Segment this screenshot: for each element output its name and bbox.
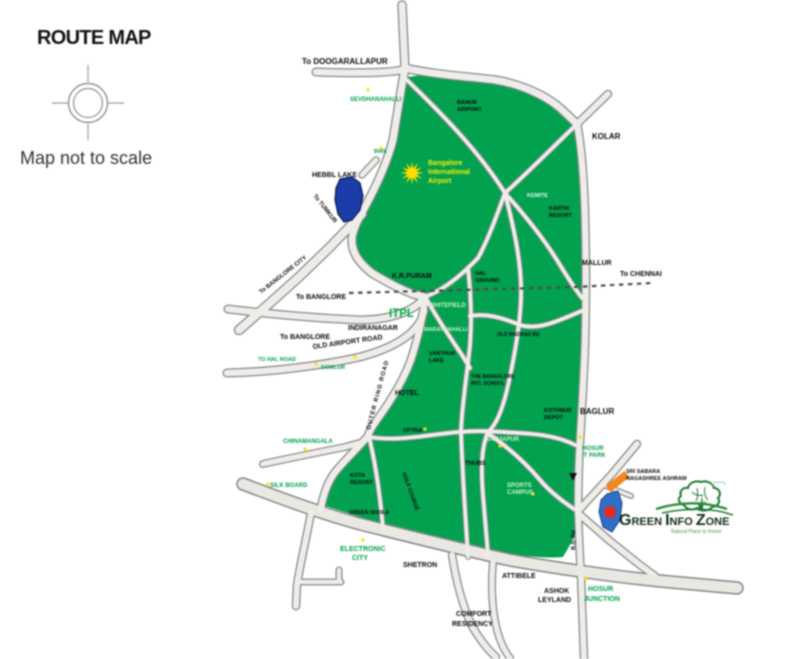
svg-text:MARATHAHALLI: MARATHAHALLI [424,327,468,333]
svg-text:HOSUR: HOSUR [582,446,604,452]
svg-text:MALLUR: MALLUR [582,260,612,267]
svg-text:KOLAR: KOLAR [592,132,621,141]
svg-text:BANUR: BANUR [457,100,477,106]
svg-text:HOTEL: HOTEL [395,390,419,397]
svg-text:SILK BOARD: SILK BOARD [270,483,308,489]
svg-text:To BANGLORE: To BANGLORE [280,334,330,341]
svg-text:HAL: HAL [475,271,487,277]
svg-text:Map not to scale: Map not to scale [20,148,152,168]
svg-text:RESORT: RESORT [549,213,573,219]
svg-text:IT PARK: IT PARK [582,453,606,459]
svg-text:LEYLAND: LEYLAND [538,597,571,604]
svg-text:VARTHUR: VARTHUR [429,351,456,357]
svg-text:OPTRA: OPTRA [403,428,422,434]
svg-text:To DOOGARALLAPUR: To DOOGARALLAPUR [302,57,388,66]
svg-text:COMFORT: COMFORT [456,611,492,618]
svg-text:KOTA: KOTA [350,473,365,479]
svg-text:RESIDENCY: RESIDENCY [452,621,493,628]
svg-text:AIRPORT: AIRPORT [457,107,482,113]
svg-text:HOSUR: HOSUR [588,586,613,593]
svg-text:INTL SCHOOL: INTL SCHOOL [471,381,505,387]
svg-text:HEBBL LAKE: HEBBL LAKE [312,172,357,179]
svg-text:Bangalore: Bangalore [428,160,462,167]
svg-text:THUBS: THUBS [465,461,486,467]
svg-text:JUNCTION: JUNCTION [584,596,620,603]
svg-text:INDIRANAGAR: INDIRANAGAR [348,325,398,332]
svg-text:Natural Place to Invest: Natural Place to Invest [671,529,722,535]
svg-text:SHETRON: SHETRON [403,562,437,569]
svg-text:International: International [428,169,470,176]
svg-text:OLD MADRAS RD: OLD MADRAS RD [497,332,540,338]
svg-text:NAGASHREE ASHRAM: NAGASHREE ASHRAM [626,476,687,482]
svg-text:BWS: BWS [374,149,387,155]
svg-text:CITY: CITY [352,555,368,562]
svg-text:KEMITE: KEMITE [527,193,548,199]
svg-text:To BANGLORE: To BANGLORE [296,294,346,301]
svg-text:LAKE: LAKE [429,358,444,364]
svg-text:To CHENNAI: To CHENNAI [620,271,662,278]
svg-text:THE BANGALORE: THE BANGALORE [471,374,515,380]
svg-text:SEVDHANAHALLI: SEVDHANAHALLI [350,97,402,103]
svg-text:ITPL: ITPL [389,308,414,320]
svg-text:ATTIBELE: ATTIBELE [502,573,536,580]
svg-text:GREEN SHOLA: GREEN SHOLA [349,510,389,516]
svg-text:DEPOT: DEPOT [544,415,564,421]
svg-text:RESORT: RESORT [350,480,374,486]
svg-text:Airport: Airport [428,178,452,185]
svg-text:ASHOK: ASHOK [544,588,569,595]
svg-text:K.R.PURAM: K.R.PURAM [392,273,432,280]
svg-text:CHINAMANGALA: CHINAMANGALA [283,439,333,445]
svg-text:KARTIK: KARTIK [549,206,570,212]
svg-text:SPORTS: SPORTS [507,483,532,489]
svg-text:B.S. Rd: B.S. Rd [571,530,577,550]
svg-text:TO HAL ROAD: TO HAL ROAD [258,357,296,363]
svg-text:ROUTE MAP: ROUTE MAP [37,27,151,49]
svg-text:SRI SABARA: SRI SABARA [626,469,660,475]
svg-text:SARJAPUR: SARJAPUR [486,437,520,443]
svg-text:GROUND: GROUND [475,278,499,284]
svg-text:WHITEFIELD: WHITEFIELD [429,303,466,309]
svg-text:CAMPUS: CAMPUS [507,490,533,496]
svg-text:BAGLUR: BAGLUR [580,407,614,416]
svg-text:DOMLUR: DOMLUR [321,365,345,371]
svg-text:ELECTRONIC: ELECTRONIC [340,546,386,553]
svg-text:KOTHNUR: KOTHNUR [544,408,572,414]
